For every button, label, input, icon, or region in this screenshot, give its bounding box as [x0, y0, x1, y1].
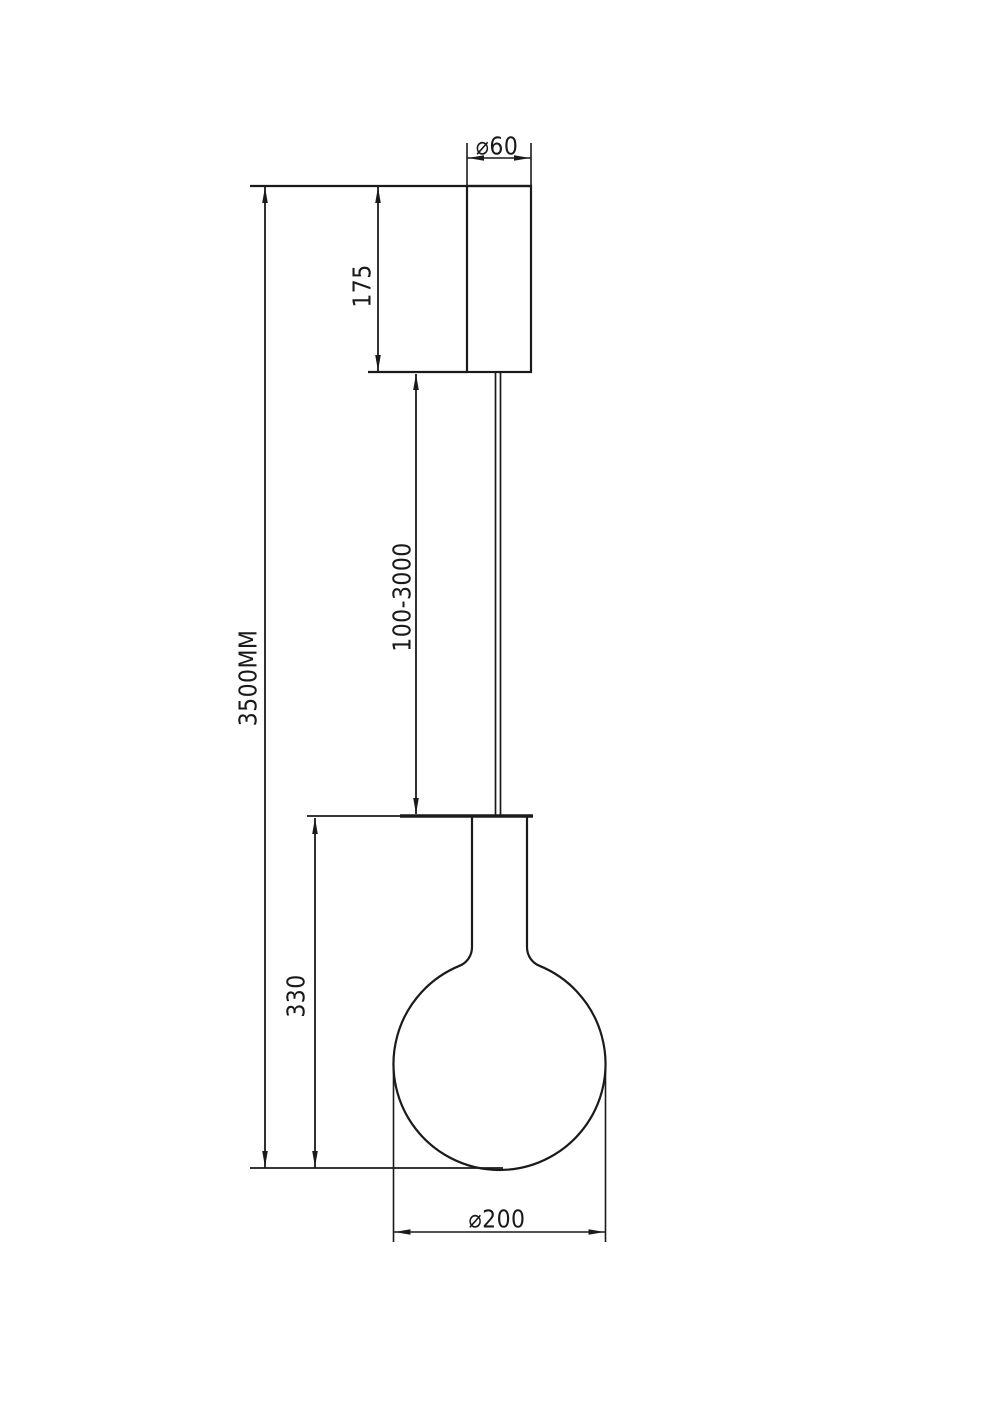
label-fixture-height: 330 [284, 974, 309, 1017]
technical-drawing: ⌀60 175 3500MM 100-3000 330 ⌀200 [0, 0, 992, 1403]
arrow-down-icon [262, 1151, 268, 1167]
pendant-lamp-drawing [0, 0, 992, 1403]
canopy-outline [368, 186, 531, 372]
overall-height-dimension [262, 186, 268, 1168]
arrow-right-icon [589, 1229, 605, 1235]
arrow-up-icon [312, 818, 318, 834]
suspension-cable [496, 372, 501, 816]
bulb-outline [393, 817, 605, 1170]
arrow-up-icon [413, 374, 419, 390]
arrow-down-icon [413, 798, 419, 814]
arrow-up-icon [262, 187, 268, 203]
arrow-down-icon [375, 355, 381, 371]
arrow-left-icon [395, 1229, 411, 1235]
arrow-down-icon [312, 1151, 318, 1167]
fixture-height-dimension [312, 818, 318, 1168]
label-canopy-diameter: ⌀60 [476, 134, 519, 159]
label-suspension-length: 100-3000 [390, 542, 415, 651]
arrow-up-icon [375, 187, 381, 203]
label-shade-diameter: ⌀200 [468, 1207, 525, 1232]
label-canopy-height: 175 [350, 264, 375, 307]
label-overall-height: 3500MM [236, 630, 261, 727]
